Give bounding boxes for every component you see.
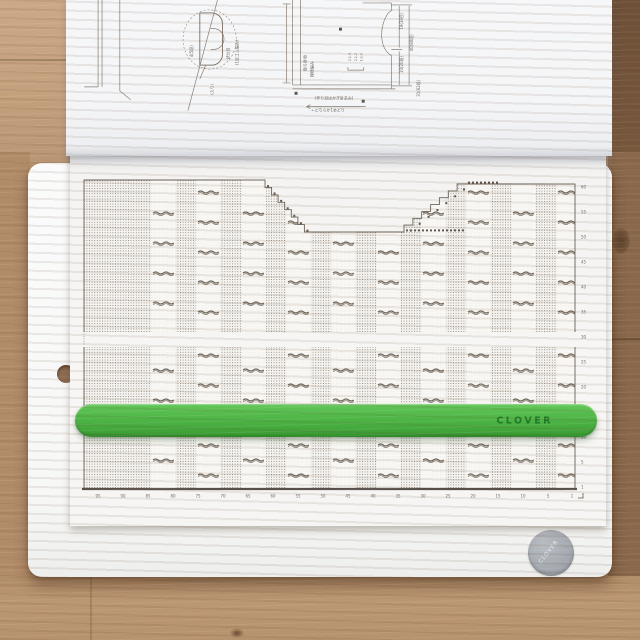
svg-text:15: 15: [495, 494, 501, 499]
schematic-label: 模様編み: [309, 61, 314, 77]
schematic-label: (えり): [210, 83, 215, 94]
wood-plank-top-right: [608, 0, 640, 152]
svg-text:45: 45: [581, 259, 587, 264]
svg-text:20: 20: [581, 384, 587, 389]
svg-text:75: 75: [195, 494, 201, 499]
schematic-label: 後ろ身頃: [302, 55, 307, 71]
svg-text:30: 30: [420, 494, 426, 499]
svg-text:45: 45: [345, 494, 351, 499]
magazine-schematic-page: 4(5段) 伏せ目 (1目ゴム編み) (えり) 後ろ身頃 模様編み 2-1-3 …: [66, 0, 612, 156]
schematic-label: 4(5段): [189, 45, 194, 57]
clover-logo-disc: CLOVER: [528, 530, 574, 576]
svg-text:25: 25: [445, 494, 451, 499]
svg-text:90: 90: [120, 494, 126, 499]
svg-text:40: 40: [370, 494, 376, 499]
svg-text:55: 55: [581, 209, 587, 214]
wood-plank-top-left: [0, 0, 68, 170]
svg-text:95: 95: [95, 494, 101, 499]
green-magnetic-row-ruler: CLOVER: [75, 404, 597, 437]
wood-seam: [90, 576, 92, 640]
shaping-note: 1-1-2: [360, 53, 364, 61]
dimension-label: 40(80段): [409, 34, 414, 51]
svg-text:30: 30: [581, 334, 587, 339]
svg-text:60: 60: [270, 494, 276, 499]
dimension-label: 31(62段): [416, 79, 421, 96]
garment-schematic-drawing: 4(5段) 伏せ目 (1目ゴム編み) (えり) 後ろ身頃 模様編み 2-1-3 …: [66, 0, 612, 156]
svg-text:1: 1: [571, 494, 574, 499]
svg-text:60: 60: [581, 184, 587, 189]
svg-text:35: 35: [581, 309, 587, 314]
svg-text:70: 70: [220, 494, 226, 499]
wood-knot: [230, 628, 244, 638]
schematic-label: 伏せ目: [225, 47, 230, 59]
wood-seam: [608, 338, 640, 340]
wood-plank-left: [0, 152, 30, 578]
wood-seam: [0, 59, 68, 61]
svg-text:25: 25: [581, 359, 587, 364]
svg-text:65: 65: [245, 494, 251, 499]
dimension-label: 10(20段): [399, 56, 404, 73]
knitting-stitch-chart: 9590858075706560555045403530252015105160…: [70, 156, 606, 526]
svg-text:40: 40: [581, 284, 587, 289]
wood-plank-bottom: [0, 576, 640, 640]
svg-text:50: 50: [320, 494, 326, 499]
svg-text:80: 80: [170, 494, 176, 499]
schematic-labels: 4(5段) 伏せ目 (1目ゴム編み) (えり) 後ろ身頃 模様編み 2-1-3 …: [189, 12, 421, 112]
badge-label: CLOVER: [538, 539, 560, 565]
schematic-label: (1目ゴム編み): [234, 39, 239, 65]
dimension-label: 19(38目): [399, 12, 404, 29]
svg-text:50: 50: [581, 234, 587, 239]
ruler-brand-label: CLOVER: [496, 415, 553, 426]
svg-text:85: 85: [145, 494, 151, 499]
svg-text:10: 10: [520, 494, 526, 499]
svg-text:55: 55: [295, 494, 301, 499]
schematic-note: (作り目はかぎ針あみ): [315, 96, 354, 101]
pattern-chart-page: 9590858075706560555045403530252015105160…: [70, 156, 606, 526]
wood-plank-right: [608, 152, 640, 578]
svg-text:1: 1: [581, 484, 584, 489]
shaping-note: 2-1-2: [354, 53, 358, 61]
svg-text:20: 20: [470, 494, 476, 499]
schematic-note: ←どちらか1本どり: [311, 108, 344, 113]
svg-text:35: 35: [395, 494, 401, 499]
shaping-note: 2-1-3: [348, 53, 352, 61]
svg-text:5: 5: [581, 459, 584, 464]
svg-text:5: 5: [547, 494, 550, 499]
wood-knot: [612, 228, 630, 254]
